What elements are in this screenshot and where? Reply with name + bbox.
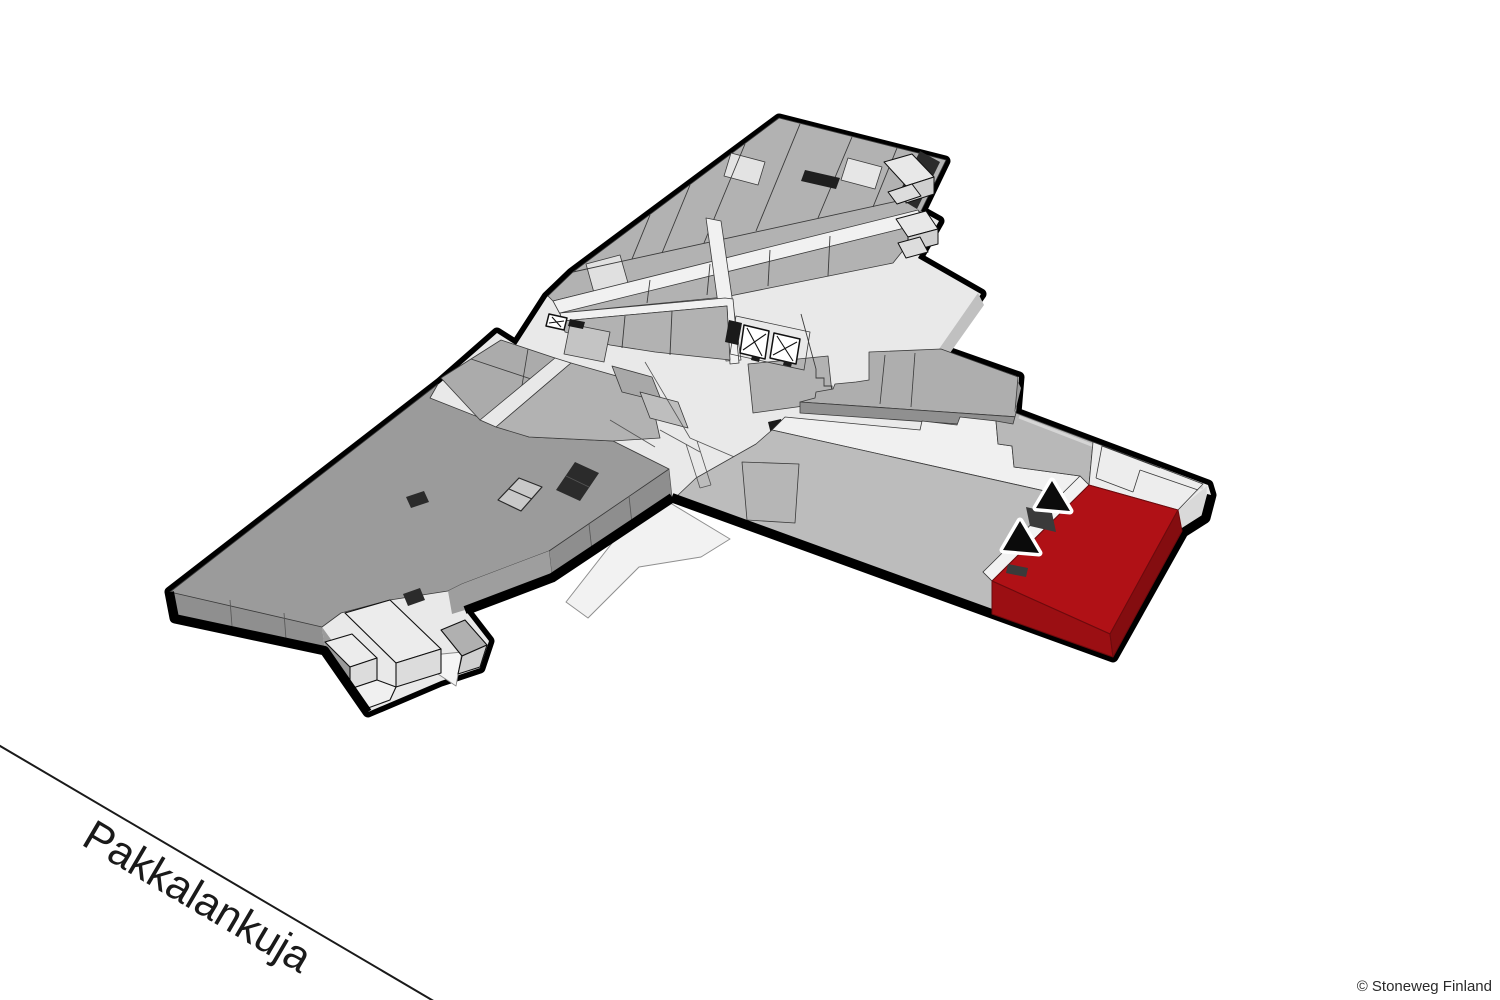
svg-text:© Stoneweg Finland: © Stoneweg Finland bbox=[1357, 978, 1492, 995]
